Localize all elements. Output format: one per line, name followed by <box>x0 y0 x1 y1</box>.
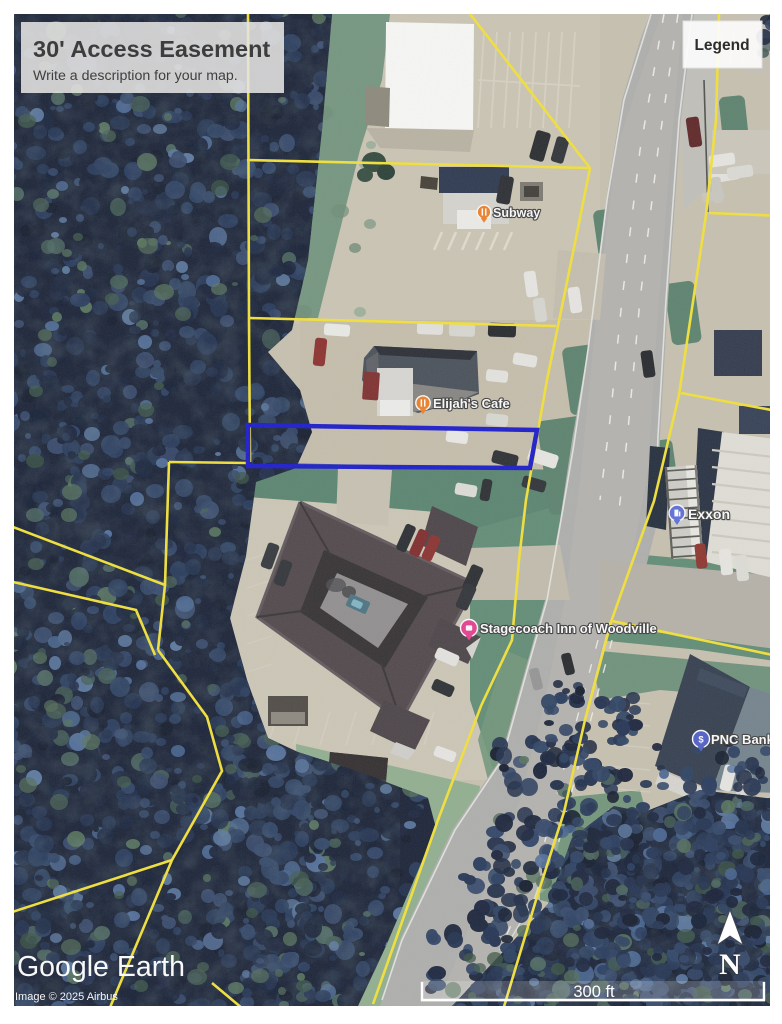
svg-text:30' Access Easement: 30' Access Easement <box>33 36 270 62</box>
svg-text:Google Earth: Google Earth <box>17 951 185 983</box>
svg-text:Image © 2025 Airbus: Image © 2025 Airbus <box>15 991 118 1003</box>
svg-text:N: N <box>719 948 741 981</box>
svg-text:Write a description for your m: Write a description for your map. <box>33 68 238 84</box>
svg-text:300 ft: 300 ft <box>573 983 615 1001</box>
svg-text:Legend: Legend <box>694 37 749 54</box>
